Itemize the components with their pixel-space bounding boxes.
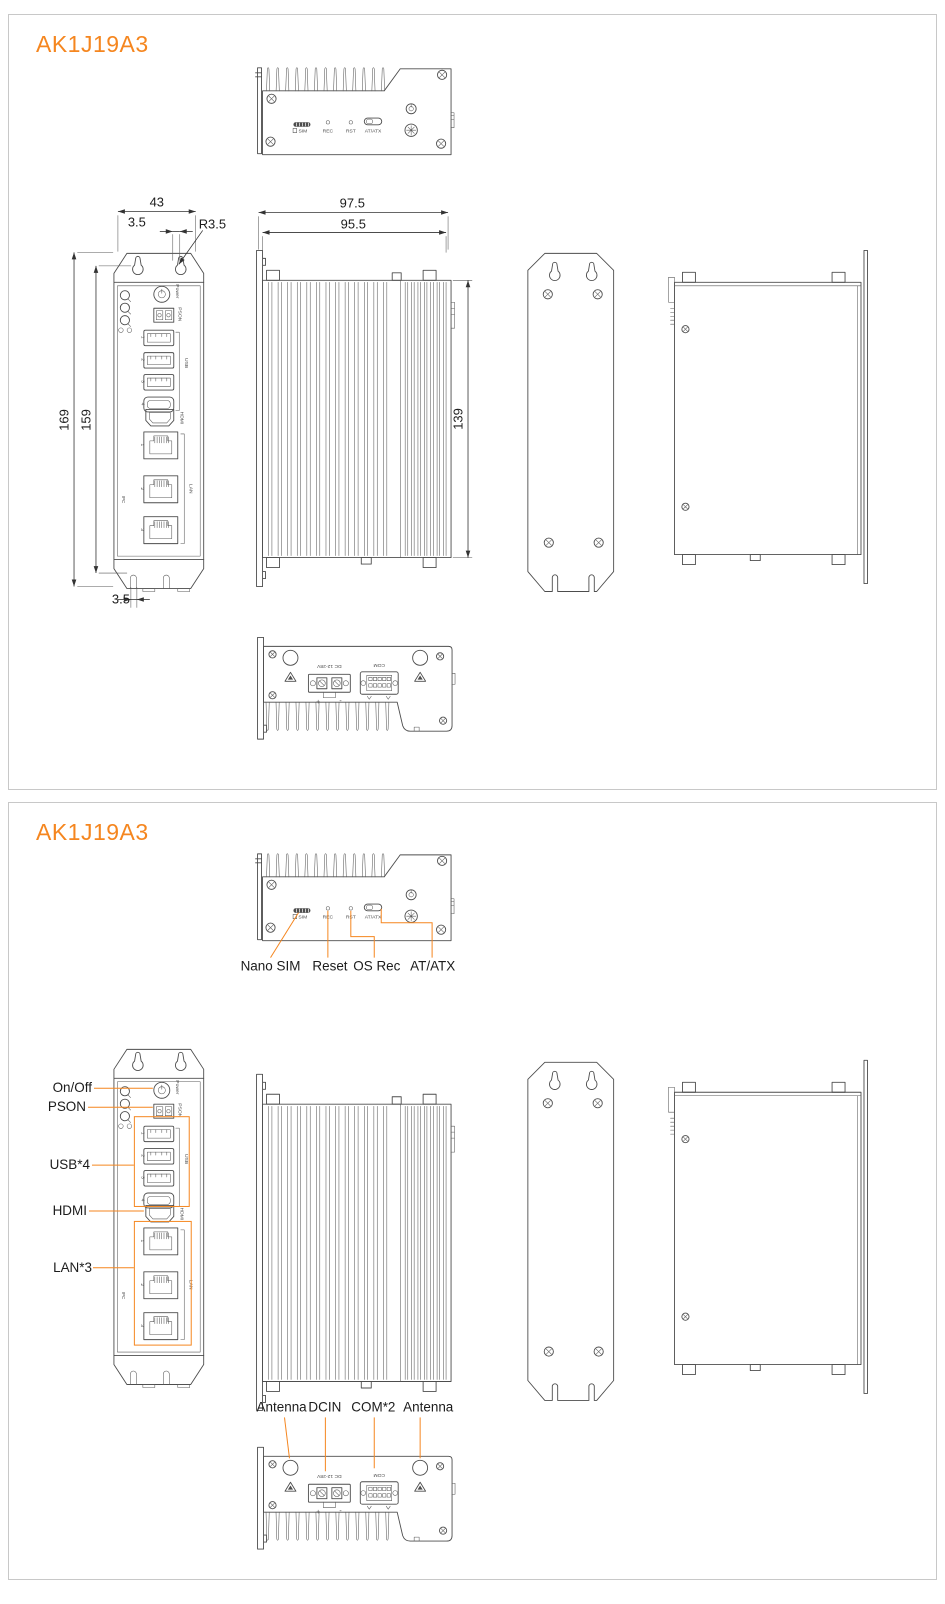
side-view	[668, 250, 867, 583]
dim-hs-outer	[259, 210, 449, 215]
dim-label-top-width: 43	[150, 195, 164, 210]
dim-top-width	[118, 209, 196, 214]
callout-dcin: DCIN	[308, 1399, 341, 1414]
side-view	[668, 1060, 867, 1393]
leader-corner-radius	[179, 230, 203, 264]
heatsink-view	[257, 1074, 455, 1410]
callout-antenna-left: Antenna	[257, 1399, 308, 1414]
dim-label-bottom-offset: 3.5	[112, 591, 130, 606]
dim-hs-height	[466, 280, 471, 557]
callout-usb4: USB*4	[50, 1157, 91, 1172]
bottom-view	[258, 1447, 455, 1549]
dim-label-hs-inner: 95.5	[341, 216, 366, 231]
callout-nano-sim: Nano SIM	[241, 959, 301, 974]
callout-pson: PSON	[48, 1099, 86, 1114]
front-view	[114, 1049, 204, 1387]
top-view	[256, 68, 454, 155]
callout-hdmi: HDMI	[53, 1203, 87, 1218]
dim-label-hs-outer: 97.5	[340, 196, 365, 211]
dim-label-hs-height: 139	[451, 408, 466, 430]
callout-reset: Reset	[312, 959, 347, 974]
dim-label-top-offset: 3.5	[128, 214, 146, 229]
backplate-view	[528, 253, 614, 591]
callout-com2: COM*2	[351, 1399, 395, 1414]
front-view	[114, 253, 204, 591]
panel2-drawing: Nano SIM Reset OS Rec AT/ATX On/Off PSON…	[9, 803, 936, 1579]
dim-height-outer	[72, 252, 77, 586]
dim-label-height-outer: 169	[57, 409, 72, 431]
dim-label-height-inner: 159	[78, 409, 93, 431]
callout-on-off: On/Off	[53, 1080, 93, 1095]
dim-label-corner-radius: R3.5	[199, 216, 226, 231]
leader-antenna-left	[284, 1417, 289, 1458]
backplate-view	[528, 1062, 614, 1400]
dim-height-inner	[94, 266, 99, 573]
callout-os-rec: OS Rec	[353, 959, 400, 974]
panel-dimensioned-views: AK1J19A3 43 3.5 R3.5 169 159 3.5	[8, 14, 937, 790]
top-view	[256, 854, 454, 941]
callout-lan3: LAN*3	[53, 1260, 92, 1275]
drawing-page: SIM REC RST AT/ATX	[0, 0, 945, 1604]
leader-nano-sim	[271, 913, 299, 958]
bottom-view	[258, 637, 455, 739]
panel-labeled-views: AK1J19A3 Nano SIM Reset OS Rec AT/ATX	[8, 802, 937, 1580]
heatsink-view	[257, 250, 455, 586]
callout-antenna-right: Antenna	[403, 1399, 454, 1414]
callout-at-atx: AT/ATX	[410, 959, 455, 974]
panel1-drawing: 43 3.5 R3.5 169 159 3.5 97.5 95.5 139	[9, 15, 936, 789]
dim-top-offset	[160, 229, 193, 234]
